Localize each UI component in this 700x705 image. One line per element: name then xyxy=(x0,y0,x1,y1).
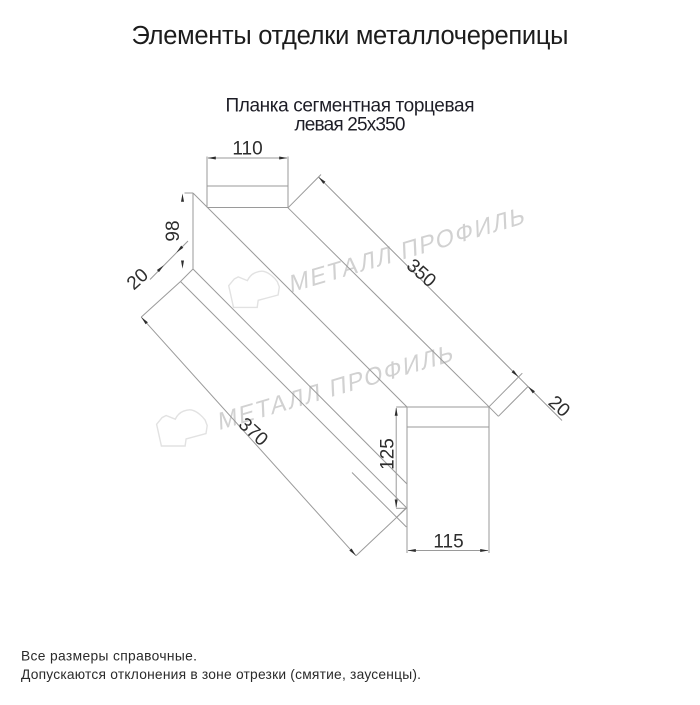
svg-text:125: 125 xyxy=(377,438,398,470)
svg-text:левая 25x350: левая 25x350 xyxy=(295,115,406,136)
svg-text:Планка сегментная торцевая: Планка сегментная торцевая xyxy=(226,96,475,117)
svg-text:Допускаются отклонения в зоне: Допускаются отклонения в зоне отрезки (с… xyxy=(21,667,421,682)
svg-text:115: 115 xyxy=(433,532,463,553)
svg-text:110: 110 xyxy=(232,139,262,160)
svg-text:Элементы отделки металлочерепи: Элементы отделки металлочерепицы xyxy=(132,22,569,50)
svg-text:98: 98 xyxy=(163,220,184,241)
svg-text:Все размеры справочные.: Все размеры справочные. xyxy=(21,649,197,664)
